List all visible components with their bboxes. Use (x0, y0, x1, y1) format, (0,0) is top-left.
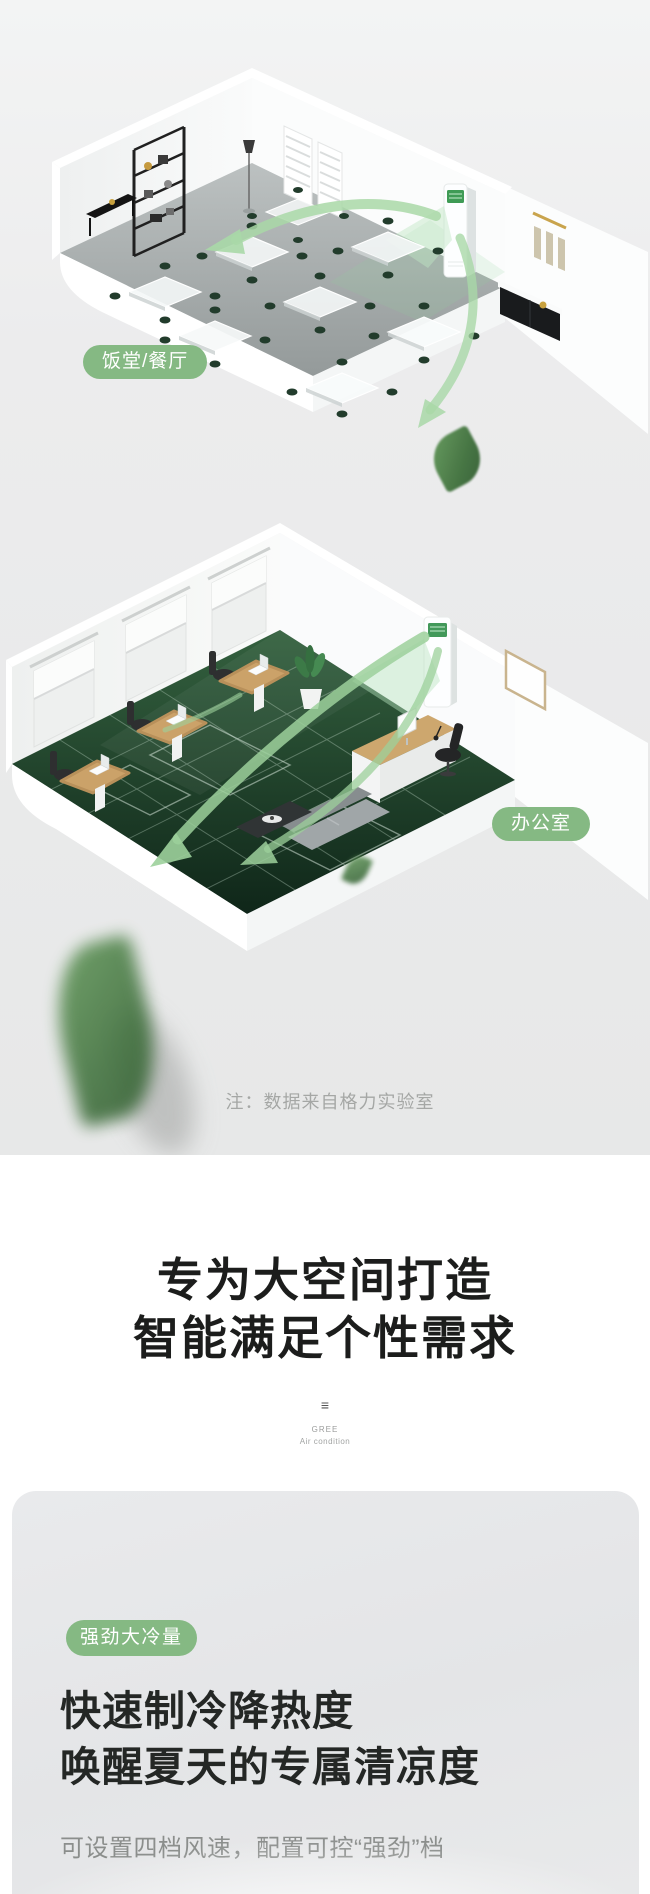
room-showcase-section: 饭堂/餐厅 办公室 注：数据来自格力实验室 (0, 0, 650, 1155)
brand-block: ≡ GREE Air condition (0, 1399, 650, 1446)
feature-title-line1: 快速制冷降热度 (60, 1683, 480, 1739)
data-source-note: 注：数据来自格力实验室 (0, 1088, 650, 1114)
product-detail-page: 饭堂/餐厅 办公室 注：数据来自格力实验室 专为大空间打造 智能满足个性需求 ≡… (0, 0, 650, 1894)
feature-title-line2: 唤醒夏天的专属清凉度 (60, 1739, 480, 1795)
feature-description: 可设置四档风速，配置可控“强劲”档 (60, 1828, 444, 1863)
brand-logo-icon: ≡ (0, 1399, 650, 1411)
office-badge: 办公室 (492, 807, 590, 841)
brand-tagline: Air condition (0, 1437, 650, 1446)
main-heading-line1: 专为大空间打造 (0, 1251, 650, 1309)
feature-title: 快速制冷降热度 唤醒夏天的专属清凉度 (60, 1683, 480, 1795)
dining-room-badge: 饭堂/餐厅 (83, 345, 207, 379)
main-heading: 专为大空间打造 智能满足个性需求 (0, 1251, 650, 1367)
leaf-shadow (94, 1001, 211, 1166)
feature-badge: 强劲大冷量 (66, 1620, 197, 1656)
headline-section: 专为大空间打造 智能满足个性需求 ≡ GREE Air condition (0, 1155, 650, 1491)
office-illustration (0, 455, 650, 1015)
brand-name: GREE (0, 1425, 650, 1434)
dining-room-illustration (0, 0, 650, 470)
office-structure (0, 523, 648, 957)
feature-card: 强劲大冷量 快速制冷降热度 唤醒夏天的专属清凉度 可设置四档风速，配置可控“强劲… (12, 1491, 639, 1894)
main-heading-line2: 智能满足个性需求 (0, 1309, 650, 1367)
